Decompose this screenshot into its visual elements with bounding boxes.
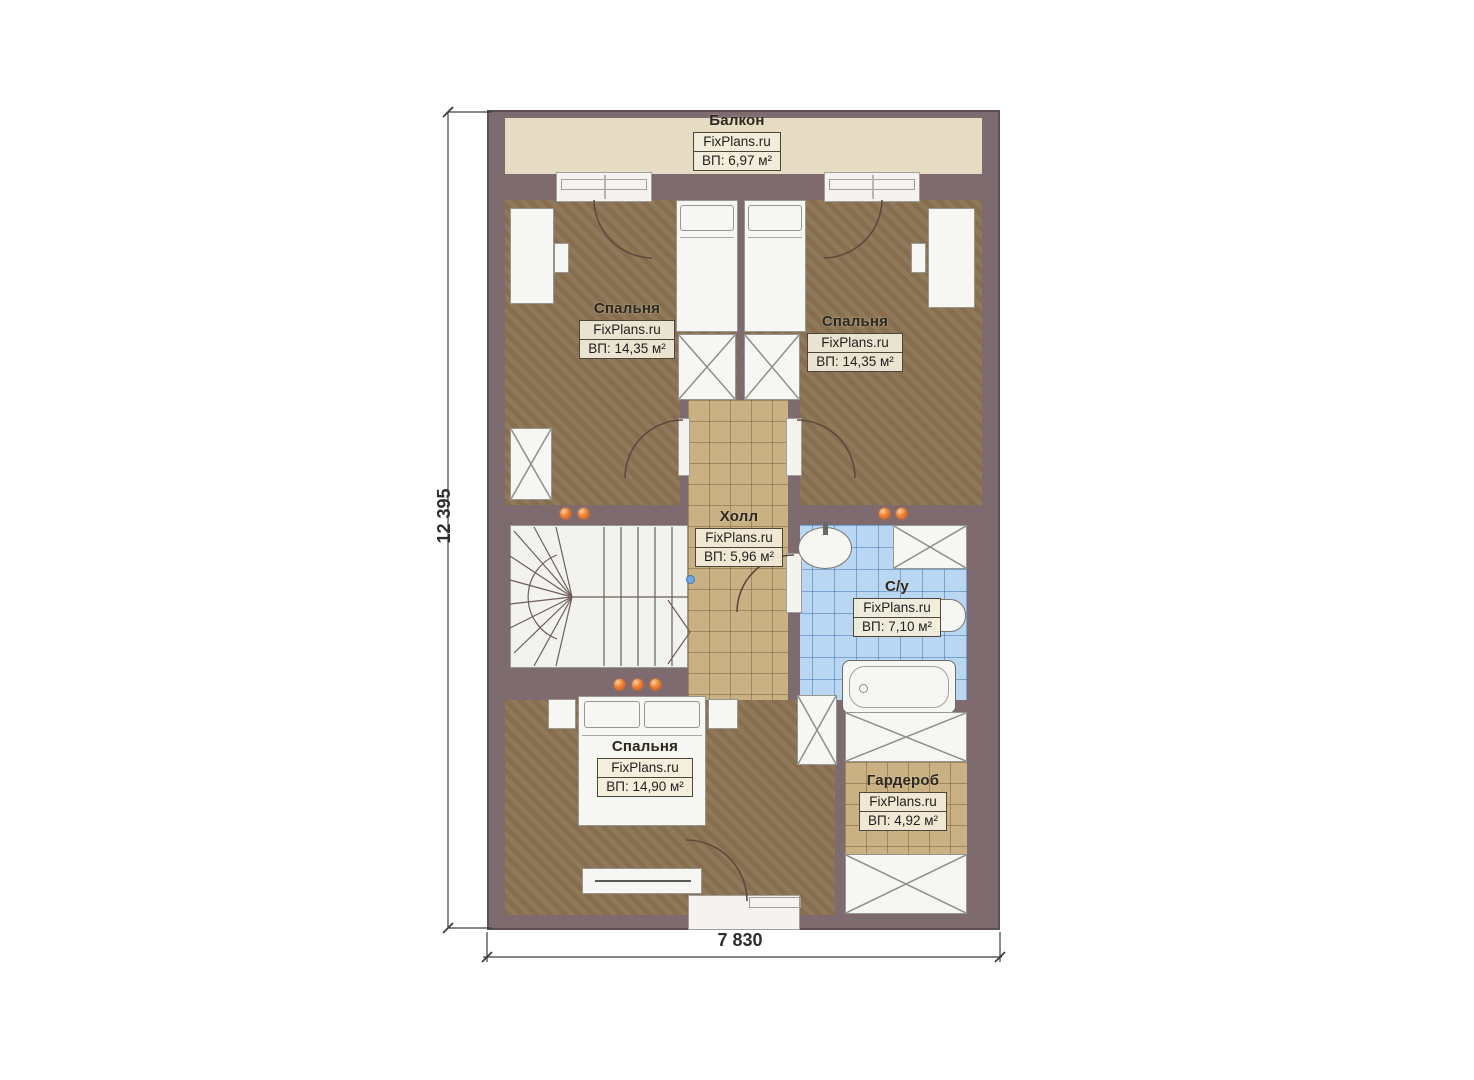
- bottom-entry-door: [688, 895, 800, 930]
- blanket-line: [582, 735, 702, 736]
- room-label-wardrobe: Гардероб FixPlans.ru ВП: 4,92 м²: [838, 772, 968, 831]
- balcony-door-right: [824, 172, 920, 202]
- brand-text: FixPlans.ru: [860, 793, 946, 811]
- room-name: Гардероб: [838, 772, 968, 789]
- room-info-box: FixPlans.ru ВП: 6,97 м²: [693, 132, 781, 171]
- radiator-dot: [650, 679, 661, 690]
- brand-text: FixPlans.ru: [694, 133, 780, 151]
- radiator-dot: [560, 508, 571, 519]
- mid-wall-left: [505, 505, 680, 525]
- bottom-entry-door-leaf: [749, 897, 801, 908]
- room-info-box: FixPlans.ru ВП: 14,35 м²: [807, 333, 903, 372]
- room-label-bedroom-bottom: Спальня FixPlans.ru ВП: 14,90 м²: [580, 738, 710, 797]
- pillow: [644, 701, 700, 728]
- brand-text: FixPlans.ru: [696, 529, 782, 547]
- room-name: С/у: [832, 578, 962, 595]
- area-text: ВП: 5,96 м²: [696, 547, 782, 566]
- cabinet-x-wardrobe-bottom: [845, 854, 967, 914]
- hall-bedroom-right-door: [786, 418, 802, 476]
- desk-left: [510, 208, 554, 304]
- cabinet-x-bathroom: [893, 525, 967, 569]
- area-text: ВП: 4,92 м²: [860, 811, 946, 830]
- radiator-dot: [578, 508, 589, 519]
- floor-plan-canvas: Балкон FixPlans.ru ВП: 6,97 м² Спальня F…: [0, 0, 1474, 1080]
- tv-line: [595, 880, 691, 882]
- room-info-box: FixPlans.ru ВП: 5,96 м²: [695, 528, 783, 567]
- pillow: [680, 205, 734, 231]
- room-name: Спальня: [580, 738, 710, 755]
- bathtub-drain: [859, 684, 868, 693]
- blanket-line: [748, 237, 802, 238]
- cabinet-x-left-corner: [510, 428, 552, 500]
- bathtub: [842, 660, 956, 714]
- sink-tap: [823, 522, 828, 535]
- nightstand-left: [548, 699, 576, 729]
- radiator-dot: [879, 508, 890, 519]
- cabinet-x-wardrobe-top: [845, 712, 967, 762]
- room-name: Спальня: [790, 313, 920, 330]
- room-name: Балкон: [672, 112, 802, 129]
- x-pattern: [511, 429, 551, 499]
- brand-text: FixPlans.ru: [808, 334, 902, 352]
- room-name: Холл: [674, 508, 804, 525]
- room-info-box: FixPlans.ru ВП: 7,10 м²: [853, 598, 941, 637]
- x-pattern: [846, 855, 966, 913]
- room-label-hall: Холл FixPlans.ru ВП: 5,96 м²: [674, 508, 804, 567]
- balcony-door-left: [556, 172, 652, 202]
- radiator-dot: [896, 508, 907, 519]
- pillow: [748, 205, 802, 231]
- desk-right: [928, 208, 975, 308]
- radiator-dot: [614, 679, 625, 690]
- area-text: ВП: 14,35 м²: [580, 339, 674, 358]
- brand-text: FixPlans.ru: [580, 321, 674, 339]
- hall-marker-dot: [686, 575, 695, 584]
- pillow: [584, 701, 640, 728]
- chair-left: [554, 243, 569, 273]
- area-text: ВП: 7,10 м²: [854, 617, 940, 636]
- dimension-label-width: 7 830: [695, 930, 785, 952]
- stairs-area: [510, 525, 688, 668]
- area-text: ВП: 14,35 м²: [808, 352, 902, 371]
- cabinet-x-bottom-bedroom: [797, 695, 837, 765]
- brand-text: FixPlans.ru: [598, 759, 692, 777]
- room-name: Спальня: [562, 300, 692, 317]
- chair-right: [911, 243, 926, 273]
- radiator-dot: [632, 679, 643, 690]
- x-pattern: [798, 696, 836, 764]
- nightstand-right: [708, 699, 738, 729]
- room-label-bedroom-right: Спальня FixPlans.ru ВП: 14,35 м²: [790, 313, 920, 372]
- room-info-box: FixPlans.ru ВП: 4,92 м²: [859, 792, 947, 831]
- brand-text: FixPlans.ru: [854, 599, 940, 617]
- room-label-balcony: Балкон FixPlans.ru ВП: 6,97 м²: [672, 112, 802, 171]
- room-info-box: FixPlans.ru ВП: 14,90 м²: [597, 758, 693, 797]
- dimension-label-height: 12 395: [434, 471, 456, 561]
- hall-bedroom-left-door: [678, 418, 690, 476]
- dresser-tv: [582, 868, 702, 894]
- area-text: ВП: 6,97 м²: [694, 151, 780, 170]
- bathroom-right-wall: [967, 525, 982, 700]
- balcony-door-right-mullion: [872, 175, 874, 199]
- blanket-line: [680, 237, 734, 238]
- balcony-door-left-mullion: [604, 175, 606, 199]
- room-info-box: FixPlans.ru ВП: 14,35 м²: [579, 320, 675, 359]
- room-label-bathroom: С/у FixPlans.ru ВП: 7,10 м²: [832, 578, 962, 637]
- x-pattern: [846, 713, 966, 761]
- area-text: ВП: 14,90 м²: [598, 777, 692, 796]
- room-label-bedroom-left: Спальня FixPlans.ru ВП: 14,35 м²: [562, 300, 692, 359]
- x-pattern: [894, 526, 966, 568]
